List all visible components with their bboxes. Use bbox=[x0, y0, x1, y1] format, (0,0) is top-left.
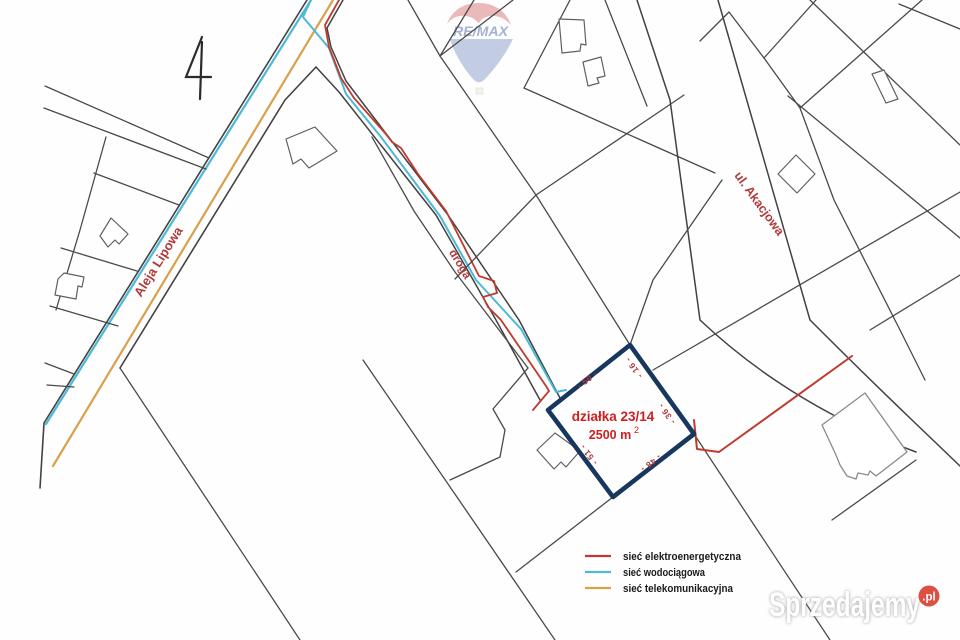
svg-text:2500 m: 2500 m bbox=[589, 428, 631, 442]
svg-text:RE/MAX: RE/MAX bbox=[453, 23, 510, 39]
svg-text:działka 23/14: działka 23/14 bbox=[572, 409, 655, 424]
svg-text:sieć elektroenergetyczna: sieć elektroenergetyczna bbox=[623, 551, 742, 563]
svg-text:2: 2 bbox=[634, 425, 639, 435]
svg-text:Sprzedajemy: Sprzedajemy bbox=[769, 586, 920, 624]
svg-text:sieć wodociągowa: sieć wodociągowa bbox=[623, 567, 706, 579]
svg-text:sieć telekomunikacyjna: sieć telekomunikacyjna bbox=[623, 583, 734, 595]
svg-text:.pl: .pl bbox=[922, 592, 935, 604]
